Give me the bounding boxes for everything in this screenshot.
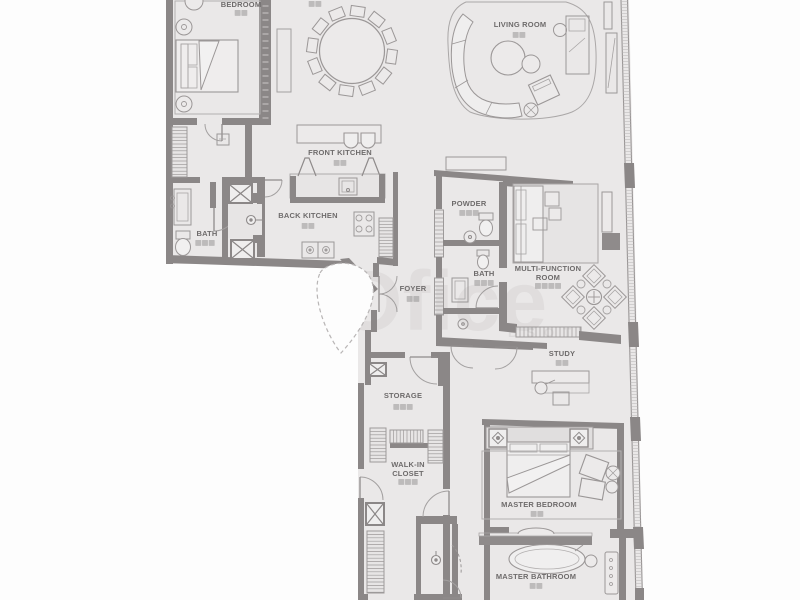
svg-text:STUDY: STUDY	[549, 349, 575, 358]
svg-text:WALK-IN: WALK-IN	[391, 460, 424, 469]
svg-text:CLOSET: CLOSET	[392, 469, 424, 478]
svg-text:FRONT KITCHEN: FRONT KITCHEN	[308, 148, 372, 157]
svg-text:BSOT: BSOT	[508, 325, 580, 340]
svg-text:BATH: BATH	[196, 229, 217, 238]
svg-text:STORAGE: STORAGE	[384, 391, 422, 400]
svg-text:MASTER BEDROOM: MASTER BEDROOM	[501, 500, 577, 509]
svg-text:POWDER: POWDER	[452, 199, 487, 208]
svg-text:BEDROOM: BEDROOM	[221, 0, 262, 9]
svg-text:MASTER BATHROOM: MASTER BATHROOM	[496, 572, 576, 581]
svg-text:BACK KITCHEN: BACK KITCHEN	[278, 211, 337, 220]
svg-text:LIVING ROOM: LIVING ROOM	[494, 20, 547, 29]
